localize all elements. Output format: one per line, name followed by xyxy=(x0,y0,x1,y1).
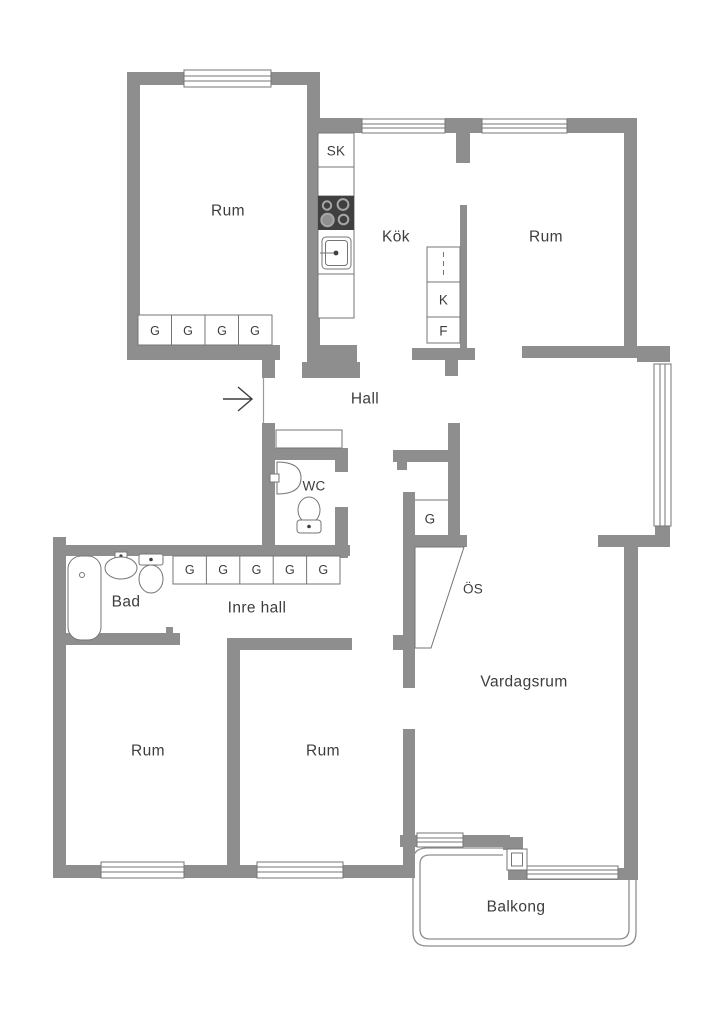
stove-icon xyxy=(318,196,354,230)
wall-segment xyxy=(307,345,357,362)
wall-segment xyxy=(448,423,460,538)
wall-segment xyxy=(393,635,403,650)
wardrobe-letter: G xyxy=(250,324,260,338)
wall-segment xyxy=(403,492,415,688)
room-label-balcony: Balkong xyxy=(487,899,546,916)
room-label-bottom-mid: Rum xyxy=(306,743,340,760)
wall-segment xyxy=(317,118,362,133)
room-label-living-room: Vardagsrum xyxy=(480,674,567,691)
wall-segment xyxy=(445,360,458,376)
room-label-top-left: Rum xyxy=(211,203,245,220)
wall-segment xyxy=(262,423,275,558)
bathroom-sink-icon xyxy=(105,552,137,579)
fixture-label-k: K xyxy=(439,293,448,308)
wall-segment xyxy=(412,348,475,360)
room-label-wc: WC xyxy=(302,479,325,494)
room-label-top-right: Rum xyxy=(529,229,563,246)
wardrobe-letter: G xyxy=(318,563,328,577)
kitchen-sink-icon xyxy=(320,237,351,269)
room-label-inner-hall: Inre hall xyxy=(228,600,287,617)
wall-segment xyxy=(335,460,348,472)
wall-segment xyxy=(302,362,360,378)
window xyxy=(417,833,463,847)
entrance-arrow-icon xyxy=(223,387,252,411)
wall-segment xyxy=(166,627,173,633)
hall-shelf xyxy=(276,430,342,448)
window xyxy=(527,866,618,879)
fireplace-outline xyxy=(415,547,464,648)
wall-segment xyxy=(53,545,350,556)
room-label-bathroom: Bad xyxy=(112,594,141,611)
wall-segment xyxy=(53,537,66,878)
fixture-label-fireplace: ÖS xyxy=(463,582,483,597)
wall-segment xyxy=(456,133,470,163)
floorplan-drawing: Rum Kök Rum Hall WC Bad Inre hall Vardag… xyxy=(0,0,724,1024)
wall-segment xyxy=(624,547,638,880)
floorplan-canvas: Rum Kök Rum Hall WC Bad Inre hall Vardag… xyxy=(0,0,724,1024)
wall-segment xyxy=(227,638,352,650)
fixture-label-f: F xyxy=(439,324,448,339)
fixture-label-g-closet: G xyxy=(425,512,436,527)
wardrobe-letter: G xyxy=(252,563,262,577)
wall-segment xyxy=(397,462,407,470)
window xyxy=(654,364,671,526)
bathtub-icon xyxy=(68,556,101,640)
wardrobe-letter: G xyxy=(218,563,228,577)
room-label-bottom-left: Rum xyxy=(131,743,165,760)
wardrobe-letter: G xyxy=(285,563,295,577)
windows xyxy=(101,70,671,879)
wardrobe-letter: G xyxy=(185,563,195,577)
wardrobe-letter: G xyxy=(217,324,227,338)
wall-segment xyxy=(262,358,275,378)
wall-segment xyxy=(598,535,670,547)
wall-segment xyxy=(227,650,240,865)
burner xyxy=(321,214,333,226)
room-label-kitchen: Kök xyxy=(382,229,410,246)
wardrobe-letter: G xyxy=(183,324,193,338)
window xyxy=(101,862,184,878)
window xyxy=(482,119,567,133)
wall-segment xyxy=(127,345,280,360)
bathroom-toilet-icon xyxy=(139,554,163,593)
window xyxy=(184,70,271,87)
wc-toilet-icon xyxy=(297,497,321,533)
wall-segment xyxy=(445,118,482,133)
wall-segment xyxy=(522,346,637,358)
wall-segment xyxy=(637,346,670,362)
wardrobe-letter: G xyxy=(150,324,160,338)
wall-segment xyxy=(624,118,637,358)
window xyxy=(257,862,343,878)
wall-segment xyxy=(275,448,348,460)
wall-segment xyxy=(503,837,523,850)
window xyxy=(362,119,445,133)
wall-segment xyxy=(460,205,467,350)
wall-segment xyxy=(408,535,467,547)
fixture-label-sk: SK xyxy=(327,144,346,159)
balcony-door xyxy=(507,849,527,870)
room-label-hall: Hall xyxy=(351,391,379,408)
